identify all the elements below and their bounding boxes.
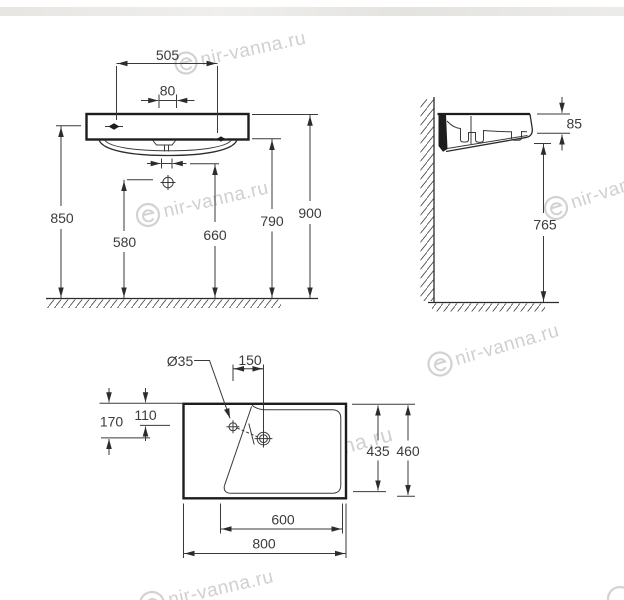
dim-435-label: 435 — [366, 443, 390, 459]
dim-850: 850 — [50, 126, 81, 299]
watermark-logo-icon — [606, 585, 624, 600]
dim-drain-width — [147, 159, 187, 169]
dim-80: 80 — [141, 83, 195, 109]
floor-hatch-front — [47, 300, 281, 309]
dim-580-label: 580 — [113, 234, 137, 250]
dim-800-label: 800 — [252, 536, 276, 552]
dim-460-label: 460 — [396, 443, 420, 459]
washbasin-dimension-drawing: nir-vanna.ru nir-vanna.ru nir-vanna.ru n… — [0, 0, 624, 600]
hole-diameter-label: Ø35 — [167, 353, 194, 369]
dim-660-label: 660 — [203, 227, 227, 243]
front-view: 505 80 850 — [46, 47, 322, 308]
dim-900-label: 900 — [298, 205, 322, 221]
dim-80-label: 80 — [160, 83, 176, 99]
drain-recess — [153, 140, 177, 152]
dim-170: 170 — [100, 388, 124, 455]
dim-765: 765 — [533, 144, 557, 303]
watermark: nir-vanna.ru — [174, 27, 308, 76]
dim-900: 900 — [252, 115, 322, 299]
dim-850-label: 850 — [50, 210, 74, 226]
dim-600-label: 600 — [271, 512, 295, 528]
watermark-text: nir-vanna.ru — [161, 177, 270, 222]
floor-hatch-side — [432, 304, 545, 312]
watermark-logo-icon — [138, 590, 167, 600]
basin-side-profile — [438, 114, 533, 152]
dim-790: 790 — [252, 139, 284, 299]
plan-view: Ø35 150 110 170 — [100, 352, 420, 558]
watermark — [606, 585, 624, 600]
watermark-text: nir-vanna.ru — [199, 28, 308, 71]
dim-85: 85 — [537, 97, 582, 151]
dim-660: 660 — [190, 164, 227, 299]
wall-hatch — [421, 99, 435, 301]
dim-85-label: 85 — [567, 116, 583, 132]
wall-bracket-section — [439, 115, 448, 152]
dim-790-label: 790 — [260, 213, 284, 229]
watermark-text: nir-vanna.ru — [568, 160, 624, 213]
watermark-logo-icon — [135, 202, 161, 228]
dim-800: 800 — [184, 504, 347, 559]
watermark-text: nir-vanna.ru — [166, 566, 275, 600]
top-gray-band — [0, 7, 624, 16]
watermark: nir-vanna.ru — [138, 564, 276, 600]
dim-580: 580 — [113, 180, 153, 299]
dim-505-label: 505 — [156, 47, 180, 63]
dim-150-label: 150 — [238, 352, 262, 368]
dim-110: 110 — [134, 388, 157, 441]
watermark-text: nir-vanna.ru — [453, 320, 562, 370]
watermark: nir-vanna.ru — [542, 159, 624, 221]
dim-600: 600 — [221, 504, 343, 534]
basin-plan-outline — [184, 404, 347, 499]
watermark: nir-vanna.ru — [426, 319, 562, 378]
watermark: nir-vanna.ru — [135, 177, 271, 229]
siphon-mark — [161, 175, 176, 190]
dim-170-label: 170 — [100, 414, 124, 430]
watermark-logo-icon — [426, 350, 454, 378]
dim-110-label: 110 — [134, 407, 157, 423]
dim-765-label: 765 — [533, 217, 557, 233]
